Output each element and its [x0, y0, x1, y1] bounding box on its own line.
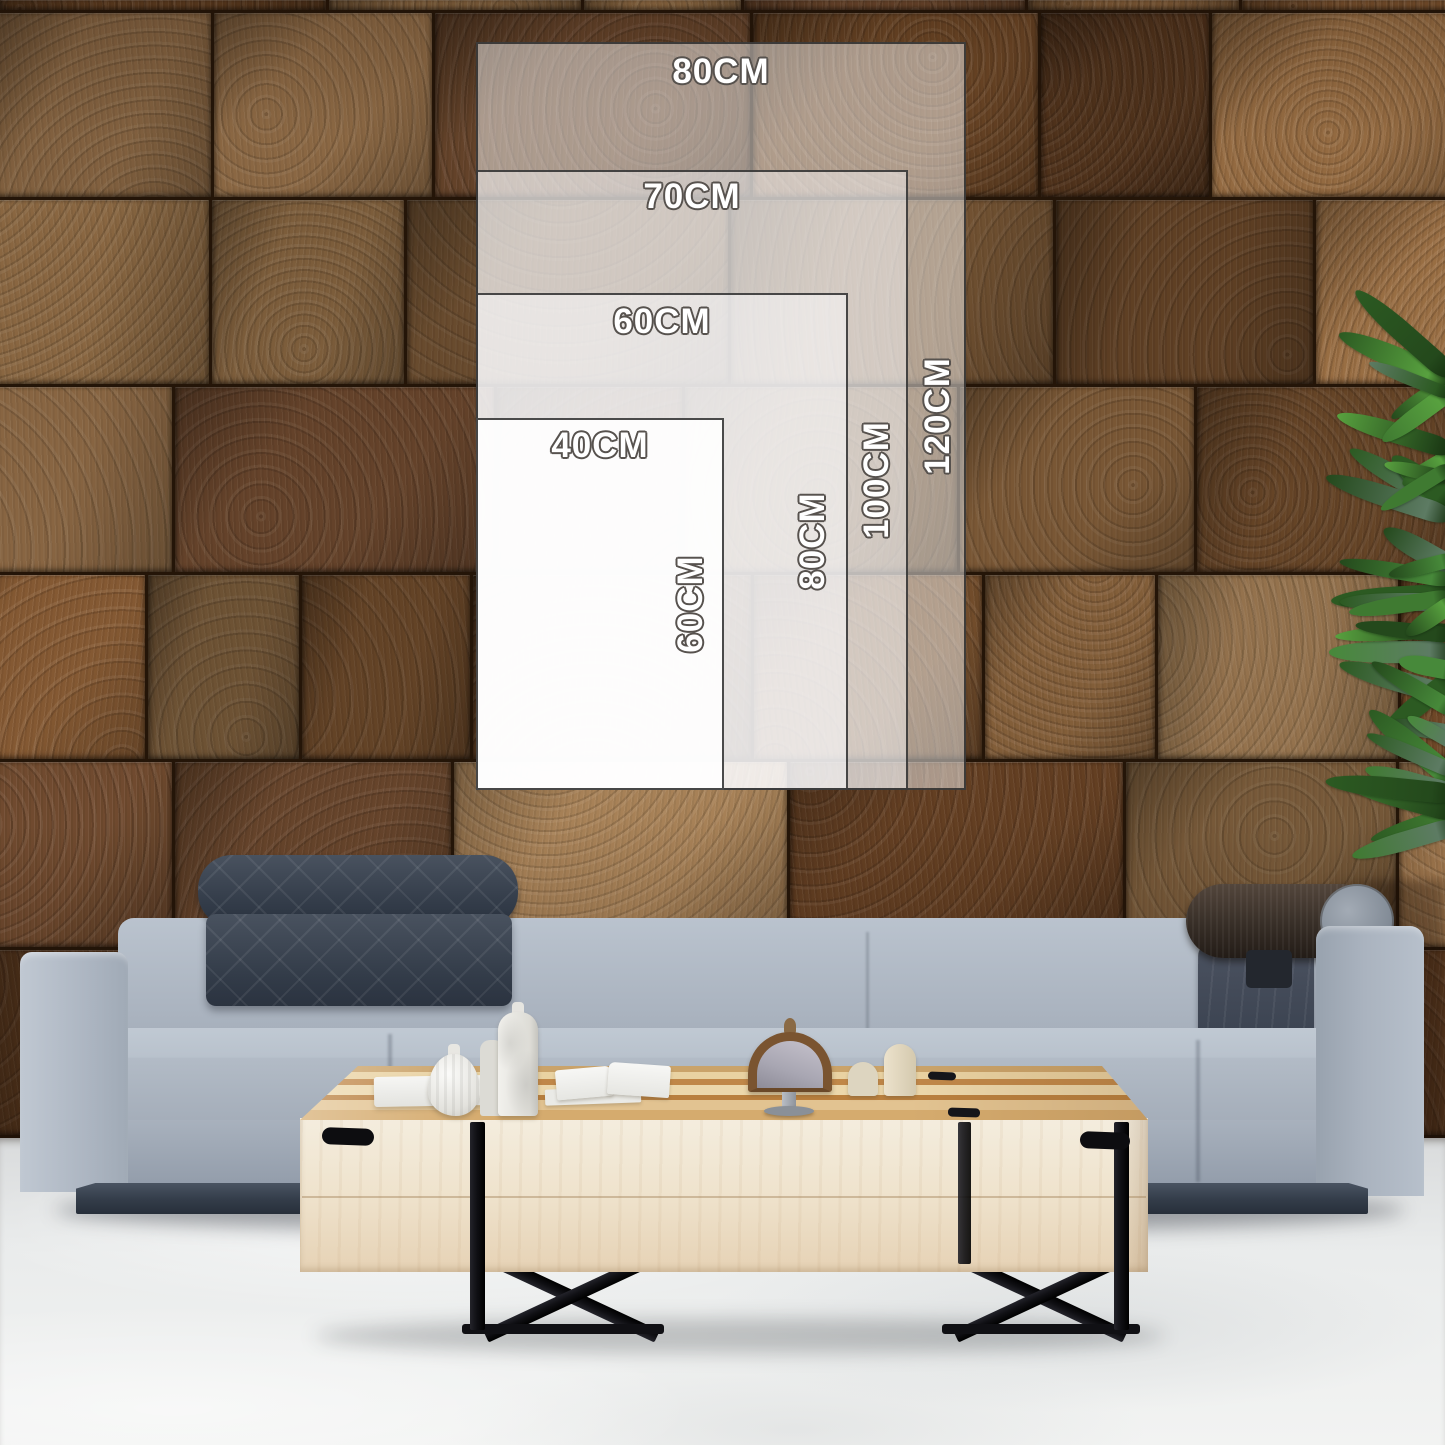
arch-mirror-base: [764, 1106, 814, 1116]
table-handle-cutout-right: [1080, 1131, 1131, 1150]
living-room-size-guide-photo: 80CM 70CM 60CM 40CM 120CM 100CM 80CM 60C…: [0, 0, 1445, 1445]
table-leg-runner: [462, 1324, 664, 1334]
table-front-panel: [300, 1118, 1148, 1272]
table-leg-runner: [942, 1324, 1140, 1334]
table-handle-cutout-left: [322, 1127, 375, 1146]
cream-decor-dome: [884, 1044, 916, 1096]
wooden-coffee-table: [0, 0, 1445, 1445]
open-book-left-page: [555, 1066, 613, 1101]
table-leg-front-right: [1114, 1122, 1129, 1330]
arch-table-mirror: [748, 1032, 832, 1092]
table-top-slot: [928, 1072, 956, 1081]
table-leg-front-left: [470, 1122, 485, 1330]
tall-white-vase: [498, 1012, 538, 1116]
open-book-right-page: [607, 1062, 671, 1098]
table-leg-front-mid: [958, 1122, 971, 1264]
table-plank-seam: [302, 1196, 1146, 1198]
table-top-slot: [948, 1107, 980, 1117]
cream-decor-dome: [848, 1062, 878, 1096]
white-pear-vase: [428, 1054, 480, 1116]
